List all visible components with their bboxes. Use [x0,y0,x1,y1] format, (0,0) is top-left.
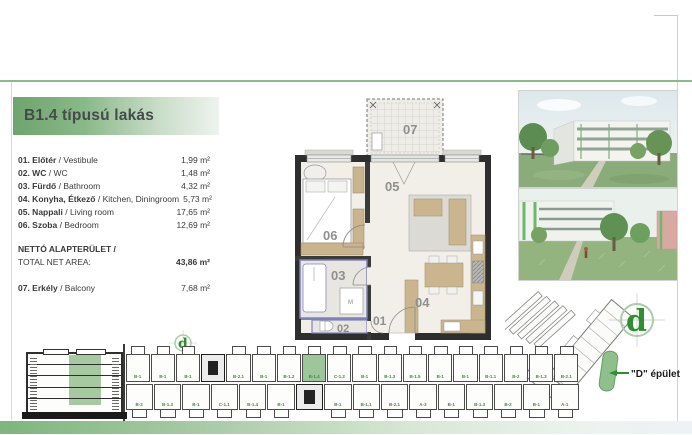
strip-unit-label: A-1 [552,402,577,407]
strip-unit-label: B-1 [325,402,350,407]
balcony-07: 07 [367,99,443,157]
strip-unit-label: C-1.2 [328,374,350,379]
strip-unit-label: B-2.1 [227,374,249,379]
strip-unit-label: B-1.3 [467,402,492,407]
total-label-en: TOTAL NET AREA: [18,256,91,269]
page-frame-left [11,82,12,420]
section-window-band-left [30,356,37,412]
strip-row-top: B-1B-1B-1B-2.1B-1B-1.2B-1.4C-1.2B-1B-1.3… [125,354,579,382]
section-floor [28,388,121,399]
room-row: 06. Szoba / Bedroom 12,69 m² [18,219,210,232]
strip-unit-label: B-1.2 [278,374,300,379]
strip-unit: B-1 [182,384,209,410]
strip-unit: B-1.4 [239,384,266,410]
strip-unit-label: B-1 [454,374,476,379]
building-section [26,352,123,416]
strip-unit: B-1 [352,354,376,382]
building-photo-bottom [518,188,678,281]
section-base-slab [22,412,127,419]
strip-unit: B-1 [151,354,175,382]
strip-unit-label: B-1.3 [530,374,552,379]
balcony-row: 07. Erkély / Balcony 7,68 m² [18,282,210,295]
room-name-hu: 05. Nappali [18,207,63,217]
room-label-living: 05 [385,179,399,194]
room-label-bathroom: 03 [331,268,345,283]
room-name-hu: 03. Fürdő [18,181,56,191]
section-floor [28,376,121,387]
total-label-hu: NETTÓ ALAPTERÜLET / [18,243,210,256]
strip-unit-label: B-2 [505,374,527,379]
room-name-en: / Living room [65,207,114,217]
strip-unit-label: B-1 [183,402,208,407]
strip-unit-label: B-1 [439,402,464,407]
section-window-band-right [112,356,119,412]
room-row: 03. Fürdő / Bathroom 4,32 m² [18,180,210,193]
strip-unit-label: B-2 [127,402,152,407]
strip-unit-label: B-1.1 [354,402,379,407]
room-row: 04. Konyha, Étkező / Kitchen, Diningroom… [18,193,210,206]
strip-unit-label: B-2.1 [555,374,577,379]
strip-unit: B-2.1 [226,354,250,382]
strip-unit: B-1 [453,354,477,382]
room-area: 1,48 m² [181,167,210,180]
strip-unit-label: B-1 [353,374,375,379]
strip-unit: B-1 [267,384,294,410]
strip-unit: C-1.1 [211,384,238,410]
total-area-value: 43,86 m² [176,256,210,269]
strip-unit-label: B-1 [429,374,451,379]
room-name-hu: 06. Szoba [18,220,57,230]
room-name-en: / Bedroom [60,220,99,230]
room-name-hu: 04. Konyha, Étkező [18,194,95,204]
building-photo-top [518,90,678,188]
room-area: 1,99 m² [181,154,210,167]
window-sill [443,150,481,155]
room-name-en: / WC [49,168,68,178]
strip-unit: B-1 [126,354,150,382]
room-area: 12,69 m² [176,219,210,232]
strip-unit-label: B-2 [495,402,520,407]
apartment-datasheet: B1.4 típusú lakás 01. Előtér / Vestibule… [0,0,692,435]
room-area: 17,65 m² [176,206,210,219]
room-label-balcony: 07 [403,122,417,137]
strip-unit: B-1 [523,384,550,410]
page-title: B1.4 típusú lakás [13,107,154,125]
strip-unit-label: C-1.1 [212,402,237,407]
strip-unit: B-1 [428,354,452,382]
strip-unit: B-1.3 [529,354,553,382]
page-crop-mark [654,15,678,16]
room-label-kitchen: 04 [415,295,430,310]
strip-unit-label: B-1 [177,374,199,379]
strip-unit-label: B-1 [524,402,549,407]
strip-unit-label: B-1.5 [404,374,426,379]
strip-unit: B-1.5 [403,354,427,382]
strip-unit-label: B-1 [268,402,293,407]
room-name-en: / Balcony [60,283,95,293]
strip-unit: B-1.3 [466,384,493,410]
window-sill [305,150,353,155]
strip-unit: B-2.1 [381,384,408,410]
section-roof [76,349,106,355]
strip-unit: B-1 [252,354,276,382]
strip-unit: A-1 [551,384,578,410]
strip-unit: B-1 [176,354,200,382]
strip-unit: B-2 [126,384,153,410]
section-floors [28,354,121,410]
stair-core [296,384,323,410]
total-area-block: NETTÓ ALAPTERÜLET / TOTAL NET AREA: 43,8… [18,243,210,269]
floor-plan: 07 [293,95,493,345]
strip-unit-label: A-3 [410,402,435,407]
floor-plan-drawing: 07 [293,95,493,345]
section-floor [28,399,121,410]
room-area: 4,32 m² [181,180,210,193]
strip-unit: A-3 [409,384,436,410]
room-name-en: / Vestibule [59,155,98,165]
strip-unit: B-1 [324,384,351,410]
strip-unit: B-1.3 [378,354,402,382]
strip-unit-highlighted: B-1.4 [302,354,326,382]
strip-unit: B-2.1 [554,354,578,382]
room-label-vestibule: 01 [373,314,387,328]
strip-unit: C-1.2 [327,354,351,382]
strip-unit: B-2 [504,354,528,382]
strip-unit-label: B-1 [127,374,149,379]
strip-unit-label: B-1.4 [303,374,325,379]
room-row: 05. Nappali / Living room 17,65 m² [18,206,210,219]
strip-unit-label: B-1.3 [155,402,180,407]
title-banner: B1.4 típusú lakás [13,97,219,135]
room-name-hu: 02. WC [18,168,46,178]
strip-unit: B-1 [438,384,465,410]
strip-unit-label: B-2.1 [382,402,407,407]
room-name-en: / Kitchen, Diningroom [98,194,179,204]
strip-unit-label: B-1.3 [379,374,401,379]
svg-text:d: d [626,304,647,339]
room-name-en: / Bathroom [59,181,101,191]
strip-unit: B-1.1 [479,354,503,382]
strip-unit-label: B-1.1 [480,374,502,379]
strip-unit: B-1.2 [277,354,301,382]
strip-unit: B-1.3 [154,384,181,410]
washer-mark: M [348,300,353,306]
strip-unit: B-2 [494,384,521,410]
room-row: 02. WC / WC 1,48 m² [18,167,210,180]
strip-row-bottom: B-2B-1.3B-1C-1.1B-1.4B-1B-1B-1.1B-2.1A-3… [125,384,579,410]
d-building-label: "D" épület [631,369,681,380]
stair-core [201,354,225,382]
strip-unit-label: B-1 [152,374,174,379]
north-logo-icon: d [609,293,665,347]
strip-unit-label: B-1 [253,374,275,379]
windows [307,155,479,162]
room-label-bedroom: 06 [323,228,337,243]
room-name-hu: 07. Erkély [18,283,58,293]
room-area: 7,68 m² [181,282,210,295]
room-name-hu: 01. Előtér [18,155,56,165]
strip-unit: B-1.1 [353,384,380,410]
room-label-wc: 02 [337,323,349,335]
section-roof [43,349,69,355]
bottom-green-bar [0,421,692,434]
floor-strip: B-1B-1B-1B-2.1B-1B-1.2B-1.4C-1.2B-1B-1.3… [123,344,579,422]
room-list: 01. Előtér / Vestibule 1,99 m² 02. WC / … [18,154,210,295]
section-floor [28,365,121,376]
section-floor [28,354,121,365]
room-area: 5,73 m² [183,193,212,206]
room-row: 01. Előtér / Vestibule 1,99 m² [18,154,210,167]
green-divider-rule [0,80,692,82]
strip-unit-label: B-1.4 [240,402,265,407]
